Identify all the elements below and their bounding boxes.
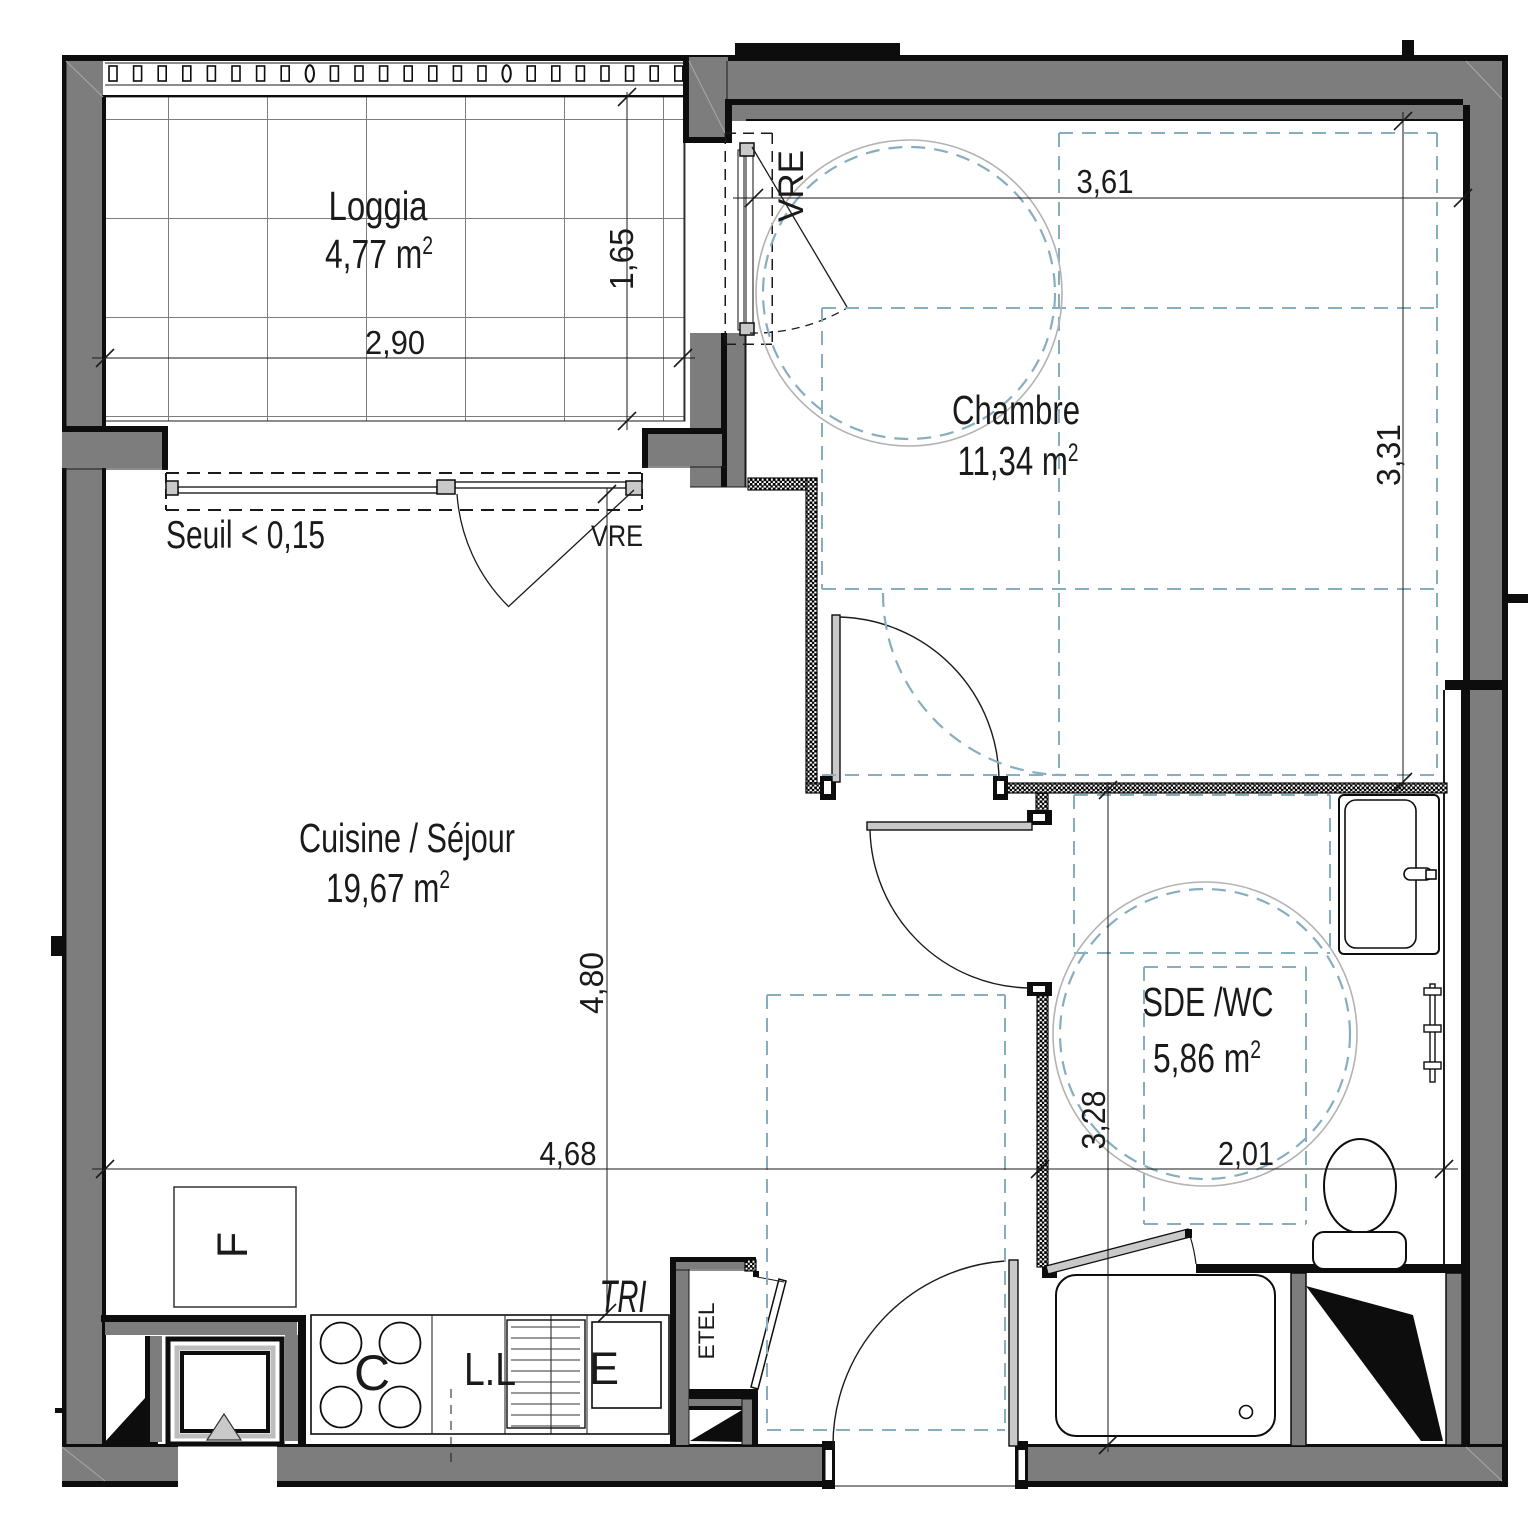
svg-text:SDE /WC: SDE /WC [1143,979,1274,1025]
svg-text:3,61: 3,61 [1077,163,1134,200]
svg-text:ETEL: ETEL [694,1303,719,1360]
svg-text:Cuisine / Séjour: Cuisine / Séjour [299,815,515,861]
svg-text:4,80: 4,80 [573,952,610,1014]
svg-text:3,28: 3,28 [1075,1091,1112,1150]
svg-text:2,01: 2,01 [1218,1135,1274,1172]
svg-text:5,86 m2: 5,86 m2 [1153,1035,1261,1081]
svg-text:VRE: VRE [591,520,643,553]
svg-text:19,67 m2: 19,67 m2 [326,865,450,911]
svg-text:4,77 m2: 4,77 m2 [325,231,433,277]
svg-text:Chambre: Chambre [952,387,1080,433]
svg-text:C: C [354,1345,390,1401]
svg-text:Loggia: Loggia [329,183,428,229]
svg-text:TRI: TRI [600,1271,647,1322]
svg-text:4,68: 4,68 [540,1135,597,1172]
svg-text:VRE: VRE [772,150,811,222]
svg-text:F: F [209,1232,257,1258]
svg-text:2,90: 2,90 [365,324,425,361]
svg-text:3,31: 3,31 [1370,424,1407,486]
svg-text:L.L: L.L [464,1343,516,1395]
svg-text:Seuil < 0,15: Seuil < 0,15 [166,514,325,557]
svg-text:1,65: 1,65 [603,228,640,290]
svg-text:E: E [589,1343,619,1394]
svg-text:11,34 m2: 11,34 m2 [958,438,1079,484]
